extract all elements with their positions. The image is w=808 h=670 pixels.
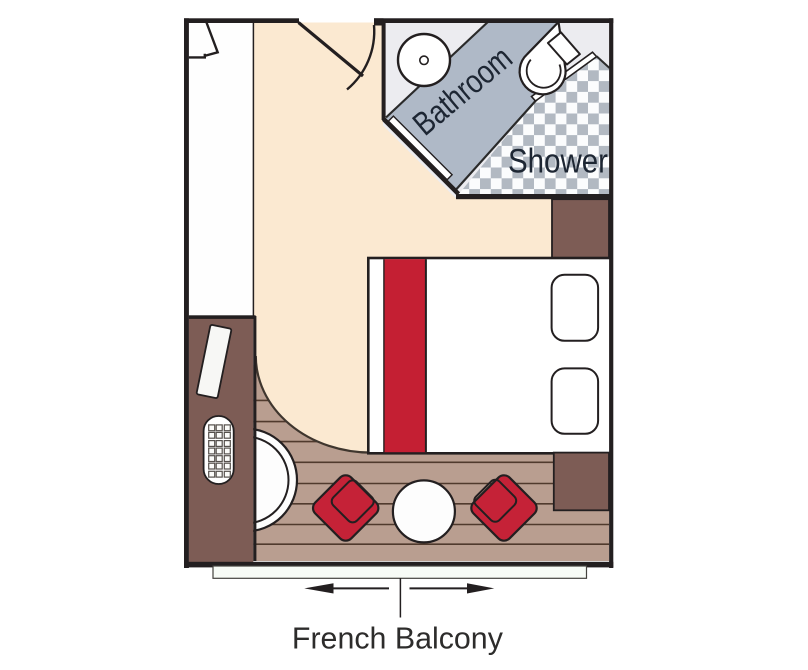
svg-text:Shower: Shower [508,143,608,181]
svg-text:French Balcony: French Balcony [292,622,504,656]
